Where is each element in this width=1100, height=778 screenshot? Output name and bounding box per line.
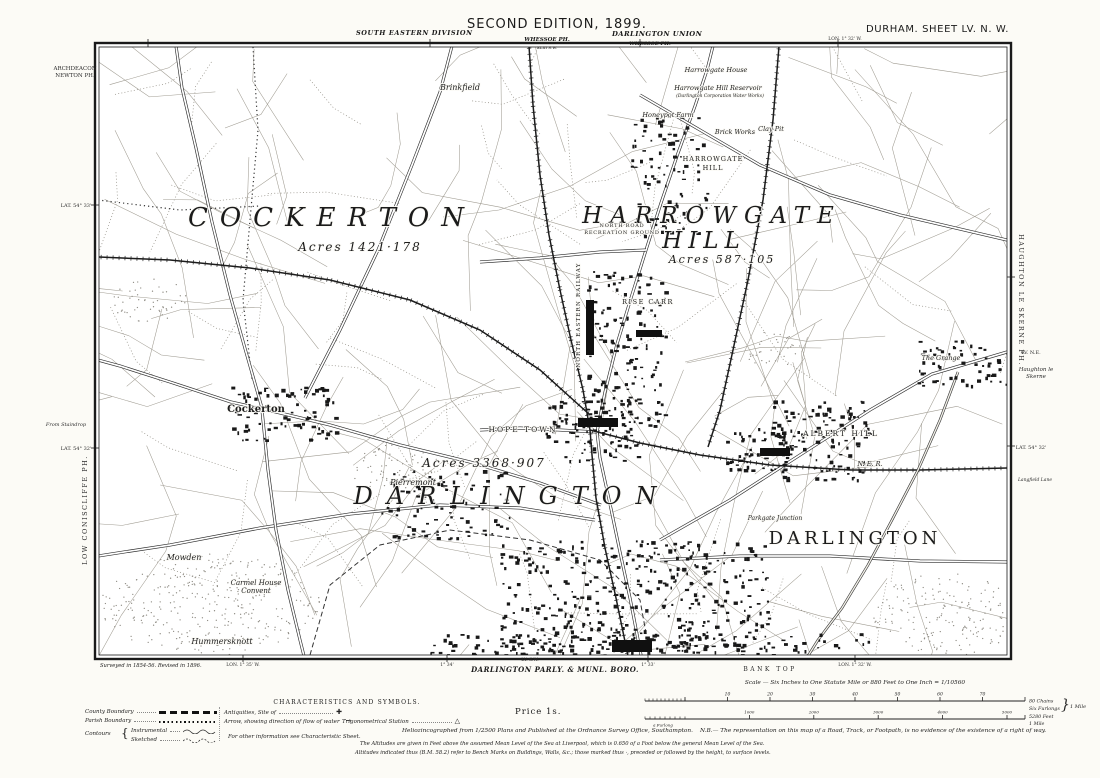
scale-feet-end: 5280 Feet	[1029, 714, 1053, 720]
legend-sketched-label: Sketched	[131, 737, 157, 743]
legend-contours-label: Contours	[85, 731, 111, 737]
map-label-convent: Convent	[241, 587, 271, 595]
map-label-hummersknott: Hummersknott	[190, 637, 253, 646]
map-label-1-34: 1° 34'	[440, 662, 454, 668]
trig-station-symbol: △	[455, 718, 460, 725]
map-label-harrowgate: HARROWGATE	[683, 155, 744, 163]
map-label-mowden: Mowden	[166, 553, 202, 562]
scale-feet-mile: 1 Mile	[1029, 721, 1045, 727]
parish-boundary-symbol	[159, 721, 217, 723]
map-label-lat-54-32: LAT. 54° 32'	[1016, 445, 1047, 451]
legend-antiquities-label: Antiquities, Site of	[224, 710, 276, 716]
map-label-lon-1-32-w: LON. 1° 32' W.	[828, 36, 862, 42]
map-label-darlington: DARLINGTON	[769, 528, 942, 549]
legend-trig-row: Trigonometrical Station △	[342, 718, 460, 725]
map-label-north-eastern-railway: NORTH EASTERN RAILWAY	[576, 262, 582, 367]
map-label-pierremont: Pierremont	[389, 478, 437, 487]
map-label-darlington-corporation-water-works: (Darlington Corporation Water Works)	[676, 92, 764, 99]
map-label-bank-top: BANK TOP	[743, 666, 796, 673]
map-label-low-coniscliffe-ph: LOW CONISCLIFFE PH.	[81, 455, 89, 565]
scale-chain-tick: 40	[851, 692, 858, 698]
map-label-darlington-parly-munl-boro: DARLINGTON PARLY. & MUNL. BORO.	[470, 665, 639, 674]
map-label-lv-n-e: LV. N.E.	[1021, 350, 1041, 356]
map-label-1-33: 1° 33'	[641, 662, 655, 668]
legend-instrumental-row: Instrumental	[131, 727, 217, 734]
contours-brace: {	[121, 726, 129, 740]
map-label-acres-587-105: Acres 587·105	[668, 253, 776, 266]
antiquities-symbol: ✚	[336, 709, 342, 716]
map-label-from-staindrop: From Staindrop	[45, 422, 87, 428]
union-title: DARLINGTON UNION	[612, 30, 702, 38]
legend-parish-row: Parish Boundary	[85, 718, 217, 724]
survey-note: Surveyed in 1854-56. Revised in 1896.	[100, 663, 202, 669]
legend-leader	[170, 731, 180, 732]
legend-leader	[160, 740, 180, 741]
map-label-brick-works: Brick Works	[714, 128, 756, 136]
map-label-brinkfield: Brinkfield	[439, 83, 480, 92]
scale-chains-alt: Six Furlongs	[1029, 706, 1060, 712]
legend-arrow-row: Arrow, showing direction of flow of wate…	[224, 718, 328, 725]
map-label-archdeacon: ARCHDEACON	[52, 66, 96, 72]
map-label-the-grange: The Grange	[922, 354, 961, 362]
map-label-acres-1421-178: Acres 1421·178	[297, 240, 421, 254]
legend-county-row: County Boundary	[85, 709, 217, 715]
map-label-langfield-lane: Langfield Lane	[1017, 477, 1052, 483]
price-label: Price 1s.	[515, 707, 561, 717]
map-label-lat-54-32: LAT. 54° 32'	[61, 446, 92, 452]
scale-feet-tick: 4000	[937, 710, 949, 715]
contour-sketched-symbol	[183, 736, 217, 743]
scale-chain-tick: 70	[980, 692, 986, 698]
scale-chain-tick: 60	[937, 692, 943, 698]
imprint-nb: N.B.— The representation on this map of …	[700, 728, 1098, 734]
map-label-acres-3368-907: Acres 3368·907	[421, 456, 545, 470]
scale-feet-tick: 3000	[873, 710, 884, 715]
legend-county-label: County Boundary	[85, 709, 134, 715]
scale-chain-tick: 50	[895, 692, 901, 698]
map-label-cockerton: Cockerton	[227, 404, 286, 415]
legend-arrow-label: Arrow, showing direction of flow of wate…	[224, 719, 340, 725]
map-label-lon-1-32-w: LON. 1° 32' W.	[838, 662, 872, 668]
legend-divider	[219, 707, 220, 741]
scale-brace: }	[1061, 697, 1070, 713]
imprint-publisher: Heliozincographed from 1/2500 Plans and …	[402, 728, 692, 734]
scale-chains-end: 80 Chains	[1029, 699, 1054, 705]
map-label-lon-1-35-w: LON. 1° 35' W.	[226, 662, 260, 668]
map-label-recreation-ground: RECREATION GROUND	[584, 230, 659, 236]
map-label-clay-pit: Clay Pit	[758, 125, 784, 133]
legend-trig-label: Trigonometrical Station	[342, 719, 409, 725]
division-title: SOUTH EASTERN DIVISION	[356, 29, 473, 37]
map-label-newton-ph: NEWTON PH.	[55, 73, 95, 79]
legend-title: CHARACTERISTICS AND SYMBOLS.	[212, 699, 482, 706]
map-label-cockerton: COCKERTON	[188, 203, 476, 233]
map-label-haughton-le: Haughton le	[1018, 367, 1054, 373]
map-label-hope-town: HOPE TOWN	[488, 425, 557, 434]
legend-leader	[412, 722, 452, 723]
scale-chain-tick: 20	[766, 692, 773, 698]
legend-sketched-row: Sketched	[131, 736, 217, 743]
legend-leader	[137, 712, 156, 713]
map-label-rise-carr: RISE CARR	[622, 298, 674, 306]
scale-chain-tick: 30	[810, 692, 816, 698]
scale-feet-tick: 1000	[744, 710, 755, 715]
scale-furlong-label: a Furlong	[653, 723, 673, 728]
legend-leader	[134, 721, 156, 722]
map-canvas: ARCHDEACONNEWTON PH.LAT. 54° 33'From Sta…	[0, 0, 1100, 778]
scale-feet-tick: 5000	[1002, 710, 1013, 715]
parish-label-right: WHESSOE PH.	[622, 41, 678, 47]
map-label-parkgate-junction: Parkgate Junction	[747, 515, 803, 522]
map-label-carmel-house: Carmel House	[231, 579, 282, 587]
map-label-harrowgate-house: Harrowgate House	[684, 66, 748, 74]
imprint-altitude1: The Altitudes are given in Feet above th…	[360, 741, 750, 747]
scale-title: Scale — Six Inches to One Statute Mile o…	[640, 680, 1070, 686]
legend-instrumental-label: Instrumental	[131, 728, 167, 734]
map-label-harrowgate-hill-reservoir: Harrowgate Hill Reservoir	[673, 84, 762, 92]
map-sheet: ARCHDEACONNEWTON PH.LAT. 54° 33'From Sta…	[0, 0, 1100, 778]
sheet-title: DURHAM. SHEET LV. N. W.	[866, 24, 1009, 35]
map-label-honeypot-farm: Honeypot Farm	[641, 111, 693, 119]
scale-chains-mile: 1 Mile	[1070, 704, 1086, 710]
map-label-n-e-r: N. E. R.	[856, 460, 882, 468]
map-label-hill: HILL	[661, 228, 746, 254]
legend-parish-label: Parish Boundary	[85, 718, 131, 724]
edition-title: SECOND EDITION, 1899.	[467, 17, 632, 32]
map-label-hill: HILL	[703, 164, 724, 172]
legend-leader	[279, 713, 333, 714]
map-label-albert-hill: ALBERT HILL	[802, 429, 879, 438]
map-label-north-road: NORTH ROAD	[600, 223, 645, 229]
parish-label-left: WHESSOE PH.	[517, 37, 577, 43]
parish-ref-left: XLIII S.W.	[517, 45, 577, 50]
contour-instrumental-symbol	[183, 727, 217, 734]
legend-other-note: For other information see Characteristic…	[228, 734, 361, 740]
map-label-skerne: Skerne	[1026, 374, 1047, 380]
imprint-altitude2: Altitudes indicated thus (B.M. 58.2) ref…	[355, 750, 755, 756]
legend-antiquities-row: Antiquities, Site of ✚	[224, 709, 342, 716]
map-label-haughton-le-skerne-ph: HAUGHTON LE SKERNE PH.	[1017, 234, 1025, 366]
county-boundary-symbol	[159, 711, 217, 714]
scale-chain-tick: 10	[725, 692, 731, 698]
map-label-lat-54-33: LAT. 54° 33'	[61, 203, 92, 209]
scale-feet-tick: 2000	[808, 710, 820, 715]
map-label-lv-s-w: LV. S.W.	[521, 657, 539, 663]
